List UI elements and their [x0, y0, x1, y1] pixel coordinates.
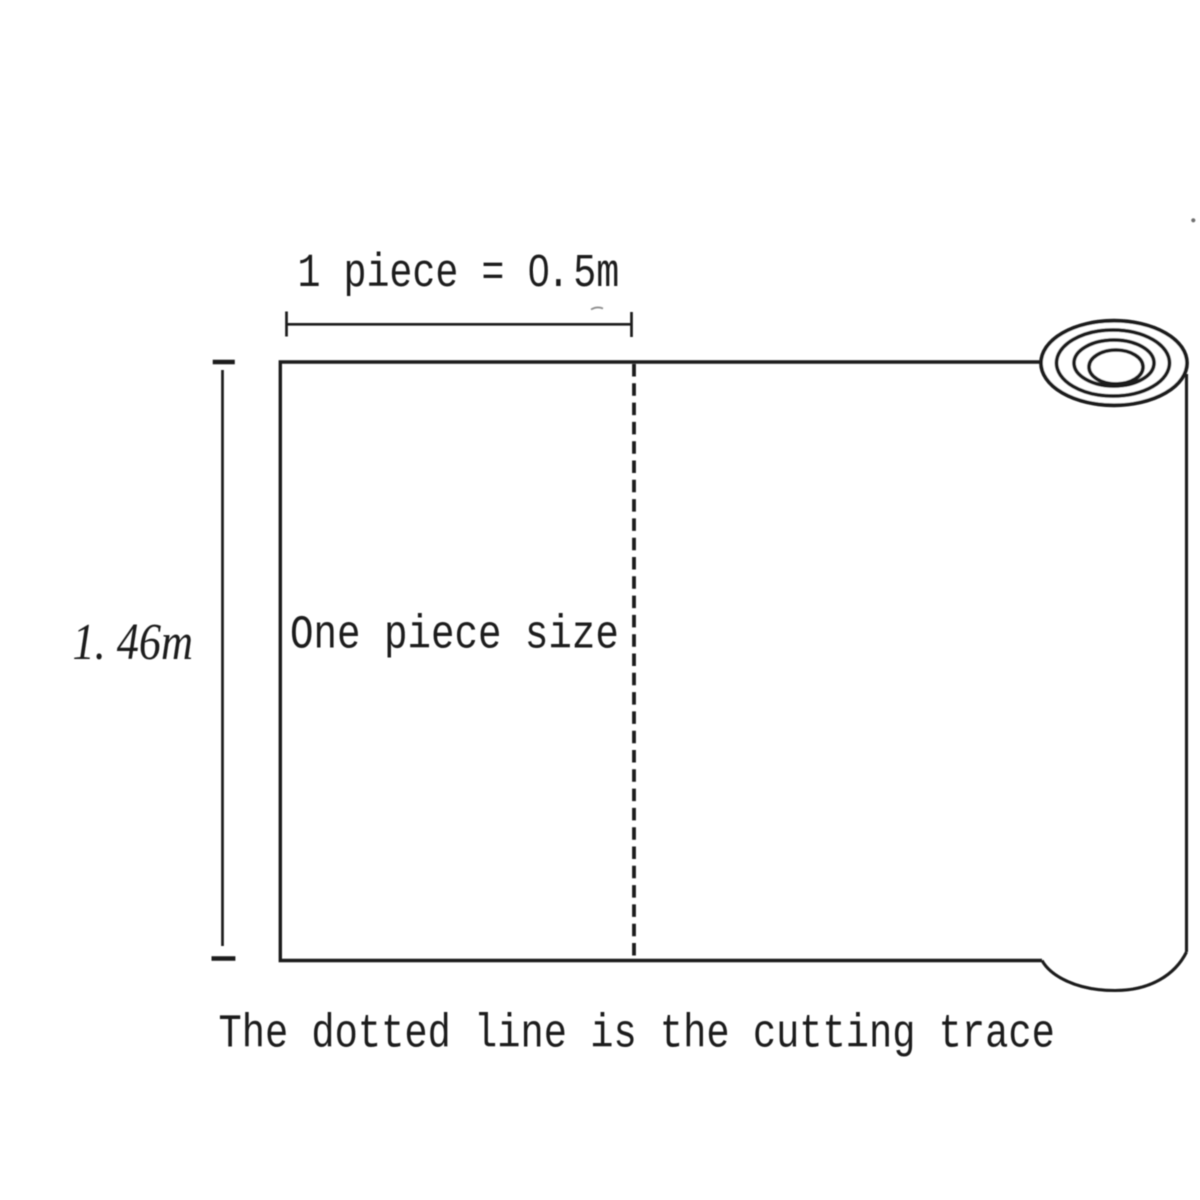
svg-text:One piece size: One piece size [290, 608, 619, 661]
svg-text:1. 46m: 1. 46m [73, 614, 194, 671]
svg-text:The dotted line is the cutting: The dotted line is the cutting trace [219, 1007, 1055, 1060]
